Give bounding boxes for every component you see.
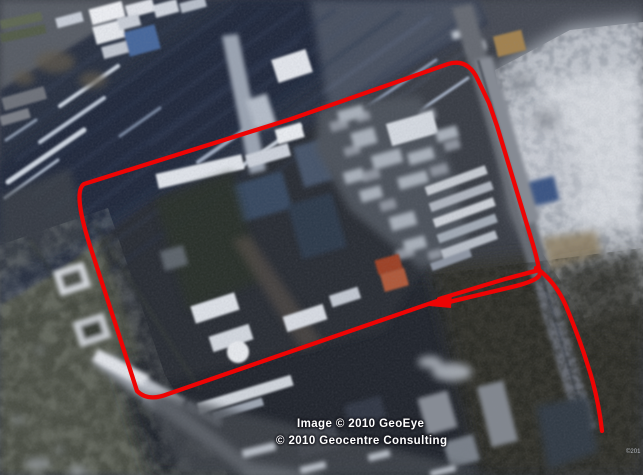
svg-text:©201: ©201 xyxy=(626,448,641,455)
svg-text:Image © 2010 GeoEye: Image © 2010 GeoEye xyxy=(297,418,424,430)
svg-text:© 2010 Geocentre Consulting: © 2010 Geocentre Consulting xyxy=(276,435,447,447)
